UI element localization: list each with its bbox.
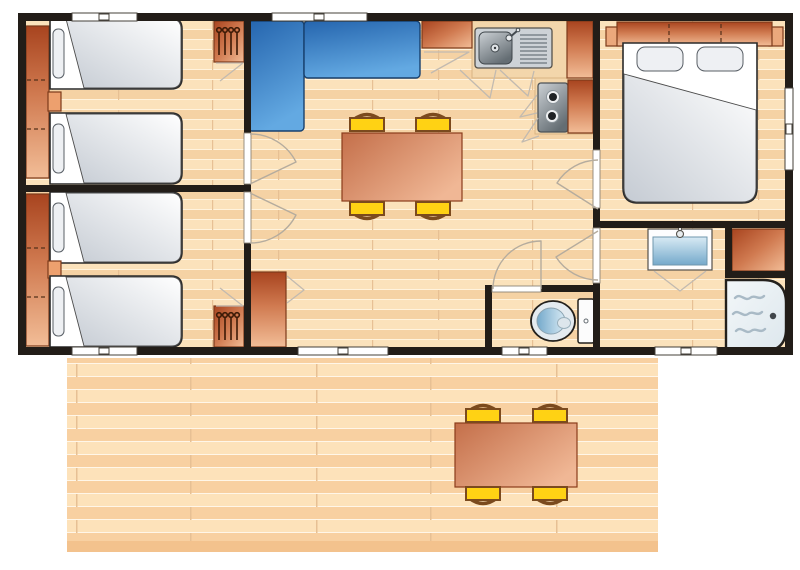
window-living <box>272 13 367 21</box>
single-bed <box>50 18 182 89</box>
bathroom-cabinet <box>732 229 785 271</box>
single-bed <box>50 192 182 263</box>
deck <box>67 358 658 552</box>
nightstand <box>48 92 61 111</box>
kitchen-sink <box>475 28 552 68</box>
storage-cabinet <box>248 272 286 347</box>
shower-tray <box>726 280 786 351</box>
window-bathroom <box>655 347 717 355</box>
single-bed <box>50 276 182 347</box>
window-wc <box>502 347 547 355</box>
fridge-cabinet <box>422 21 472 48</box>
hob-2-burner <box>538 83 568 132</box>
toilet <box>531 299 594 343</box>
washbasin-vanity <box>648 227 712 270</box>
tall-cabinet <box>567 21 593 78</box>
floor-plan <box>0 0 800 565</box>
floor-plan-svg <box>0 0 800 565</box>
wardrobe-strip <box>26 194 49 346</box>
dining-table <box>342 133 462 201</box>
base-cabinet <box>568 80 593 133</box>
patio-door <box>298 347 388 355</box>
window-bedroom-bottom <box>72 347 137 355</box>
double-bed <box>623 43 757 203</box>
hanging-closet <box>214 306 244 347</box>
window-master <box>785 88 793 170</box>
wardrobe-strip <box>26 26 49 178</box>
wc <box>531 299 594 343</box>
deck-dining-table <box>455 423 577 487</box>
hanging-closet <box>214 21 244 62</box>
shower-drain <box>770 313 776 319</box>
single-bed <box>50 113 182 184</box>
master-bedroom <box>606 22 783 203</box>
window-bedroom-top <box>72 13 137 21</box>
